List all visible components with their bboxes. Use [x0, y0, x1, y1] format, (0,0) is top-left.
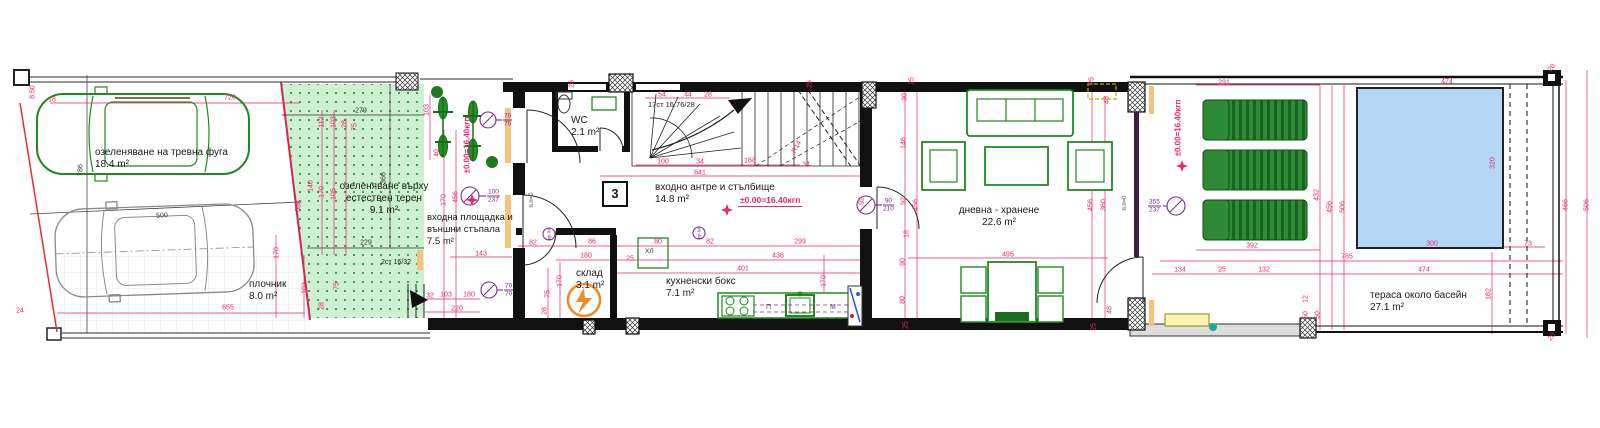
dimension-label: 143: [475, 251, 487, 258]
dimension-label: 25: [1218, 267, 1226, 274]
dimension-label: 360: [1101, 199, 1108, 211]
room-label-lawn-parking: озеленяване на тревна фуга 18.4 m²: [95, 147, 250, 171]
dimension-label: 456: [1327, 201, 1334, 213]
dimension-label: 30: [902, 93, 909, 101]
door-tag-circles: [461, 112, 1185, 298]
wc-fixtures: [556, 92, 616, 113]
room-area: 22.6 m²: [943, 217, 1055, 229]
dimension-label: 28: [704, 92, 712, 99]
dimension-label: 103: [440, 292, 452, 299]
dimension-label: 80: [654, 239, 662, 246]
dimension-label: 500: [156, 212, 168, 220]
room-label-natural-green: озеленяване върху естествен терен 9.1 m²: [336, 181, 432, 217]
dimension-label: 82: [529, 240, 537, 247]
dimension-label: 105: [331, 188, 338, 200]
dimension-label: 50: [1303, 311, 1310, 319]
room-area: 7.1 m²: [666, 288, 736, 300]
dimension-label: 140: [308, 180, 315, 192]
dimension-label: 8.50: [30, 85, 37, 99]
dimension-label: 48: [1104, 96, 1111, 104]
dimension-label: 34: [802, 162, 810, 169]
room-area: 2.1 m²: [571, 127, 599, 139]
unit-number-badge: 3: [602, 181, 628, 207]
dimension-label: 50: [1315, 311, 1322, 319]
dimension-label: 474: [1418, 267, 1430, 274]
dimension-label: 456: [913, 199, 920, 211]
dimension-label: 401: [737, 266, 749, 273]
room-name: плочник: [249, 279, 286, 291]
dimension-label: 86: [588, 239, 596, 246]
dimension-label: 103: [331, 116, 338, 128]
room-label-pool-terrace: тераса около басейн 27.1 m²: [1370, 290, 1495, 314]
dimension-label: 456: [453, 191, 460, 203]
pool: [1357, 88, 1503, 248]
dimension-label: 170: [821, 275, 828, 287]
level-mark-entry: ±0.00=16.40кгп: [463, 117, 472, 174]
terrace-dot: [1209, 323, 1217, 331]
dimension-label: 320: [1490, 157, 1497, 169]
dimension-label: 170: [557, 275, 564, 287]
dimension-label: 73: [1524, 241, 1532, 248]
dishwasher-label: М: [830, 304, 836, 311]
fence-post: [14, 70, 29, 85]
stair-note-exterior: 2ст 16/32: [381, 259, 411, 266]
dimension-label: 180: [463, 292, 475, 299]
threshold-note: п.п=0: [529, 192, 535, 207]
dimension-label: 34: [696, 159, 704, 166]
door-tag-living: 90 210: [883, 198, 894, 213]
dimension-label: 103: [302, 282, 309, 294]
room-name: WC: [571, 115, 599, 127]
room-label-kitchenette: кухненски бокс 7.1 m²: [666, 276, 736, 300]
dimension-label: 229: [360, 240, 372, 247]
room-name: склад: [576, 268, 604, 280]
dimension-label: 132: [1258, 267, 1270, 274]
dimension-label: 28: [542, 307, 549, 315]
room-name: тераса около басейн: [1370, 290, 1495, 302]
terrace-bench: [1165, 314, 1209, 326]
dimension-label: 18: [904, 230, 911, 238]
stair-note-main: 17ст 16.76/28: [648, 100, 695, 109]
dimension-label: 48: [1107, 306, 1114, 314]
dimension-label: 40: [434, 149, 441, 157]
dimension-label: 220: [451, 306, 463, 313]
dimension-label: 25: [909, 77, 916, 85]
dimension-label: 100: [657, 159, 669, 166]
dimension-label: 12: [1303, 295, 1310, 303]
washer-label: П: [766, 304, 771, 311]
dimension-label: 25: [903, 321, 910, 329]
dimension-label: 25: [569, 80, 576, 88]
dimension-label: 162: [1486, 288, 1493, 300]
level-mark-main: ±0.00=16.40кгп: [738, 195, 802, 207]
dimension-label: 655: [222, 305, 234, 312]
dimension-label: 170: [441, 194, 448, 206]
shrub: [486, 156, 498, 168]
door-tag-bike: 70 70: [503, 113, 512, 128]
dimension-label: 92: [859, 197, 866, 205]
dimension-label: 291: [1218, 80, 1230, 87]
dimension-label: 456: [1088, 199, 1095, 211]
threshold-note: п.п=0: [1122, 195, 1128, 210]
dimension-label: 720: [224, 95, 236, 102]
door-tag-entry: 100 237: [487, 189, 500, 204]
dimension-label: 28: [319, 302, 326, 310]
dimension-label: 474: [1441, 79, 1453, 86]
terrace-glazing: [1134, 112, 1139, 257]
sun-loungers: [1203, 100, 1307, 240]
dimension-label: 300: [1426, 241, 1438, 248]
dimension-label: 506: [1340, 201, 1347, 213]
dimension-label: 112: [319, 116, 326, 127]
bar-fixture: [848, 286, 862, 326]
dimension-label: 466: [1563, 199, 1570, 211]
dimension-label: 25: [1091, 323, 1098, 331]
room-name: входна площадка и външни стъпала: [427, 212, 522, 236]
dimension-label: 786: [78, 164, 85, 176]
room-label-entry-porch: входна площадка и външни стъпала 7.5 m²: [427, 212, 522, 248]
dimension-label: 180: [580, 253, 592, 260]
dimension-label: 25: [626, 256, 634, 263]
dimension-label: 785: [1341, 254, 1353, 261]
room-name: озеленяване върху естествен терен: [336, 181, 432, 205]
dimension-label: 146: [901, 137, 908, 149]
dimension-label: 24: [16, 308, 24, 315]
room-area: 9.1 m²: [336, 205, 432, 217]
dimension-label: 44: [684, 92, 692, 99]
room-label-wc: WC 2.1 m²: [571, 115, 599, 139]
dimension-label: 134: [1174, 267, 1186, 274]
dimension-label: 82: [706, 239, 714, 246]
room-label-storage: склад 3.1 m²: [576, 268, 604, 292]
dimension-label: 279: [355, 108, 367, 115]
dimension-label: 392: [1246, 243, 1258, 250]
dimension-label: 28: [342, 120, 349, 128]
coffee-table: [985, 147, 1048, 185]
door-tag-storage: 70 70: [504, 283, 513, 298]
dimension-label: 170: [274, 247, 281, 259]
dimension-label: 436: [772, 253, 784, 260]
dimension-label: 75: [352, 123, 359, 131]
terrace-parapet: [1130, 314, 1316, 338]
dimension-label: 506: [1584, 199, 1591, 211]
window-tag-terrace: 355 237: [1148, 199, 1161, 214]
frame-tag: вр-04: [547, 228, 552, 239]
dimension-label: 75: [334, 282, 341, 290]
dimension-label: 25: [1089, 77, 1096, 85]
dimension-label: 641: [694, 170, 706, 177]
frame-tag: вр-04: [697, 227, 702, 238]
dimension-label: 54: [658, 92, 666, 99]
room-area: 3.1 m²: [576, 280, 604, 292]
dining-chair: [961, 267, 986, 293]
room-name: кухненски бокс: [666, 276, 736, 288]
plan-linework: [0, 0, 1600, 428]
room-name: входно антре и стълбище: [655, 182, 820, 194]
dimension-label: 495: [1002, 252, 1014, 259]
floor-plan: озеленяване на тревна фуга 18.4 m² озеле…: [0, 0, 1600, 428]
shrub: [431, 86, 443, 98]
dimension-label: 90: [900, 258, 907, 266]
room-area: 27.1 m²: [1370, 302, 1495, 314]
dimension-label: 170: [319, 186, 326, 198]
level-mark-terrace: ±0.00=16.40кгп: [1174, 100, 1183, 157]
fence-post-bottom: [47, 328, 61, 340]
dining-chair: [961, 296, 986, 322]
dimension-label: 32: [426, 293, 434, 300]
dining-chair: [1038, 267, 1063, 293]
dimension-label: 25: [807, 80, 814, 88]
fence-pier: [396, 73, 418, 90]
fridge-label: ХЛ: [645, 248, 654, 255]
room-name: дневна - хранене: [943, 205, 1055, 217]
dimension-label: 299: [794, 239, 806, 246]
room-area: 7.5 m²: [427, 236, 522, 248]
dimension-label: 18: [48, 97, 56, 104]
dimension-label: 432: [1314, 189, 1321, 201]
room-label-living-dining: дневна - хранене 22.6 m²: [943, 205, 1055, 229]
dimension-label: 92: [901, 197, 908, 205]
room-area: 8.0 m²: [249, 291, 286, 303]
room-area: 18.4 m²: [95, 159, 250, 171]
dimension-label: 103: [424, 104, 431, 116]
room-name: озеленяване на тревна фуга: [95, 147, 250, 159]
dining-chair: [1038, 296, 1063, 322]
room-label-pavement: плочник 8.0 m²: [249, 279, 286, 303]
dimension-label: 168: [744, 158, 756, 165]
dimension-label: 366: [381, 172, 388, 184]
dimension-label: 75: [545, 290, 552, 298]
dimension-label: 80: [900, 296, 907, 304]
